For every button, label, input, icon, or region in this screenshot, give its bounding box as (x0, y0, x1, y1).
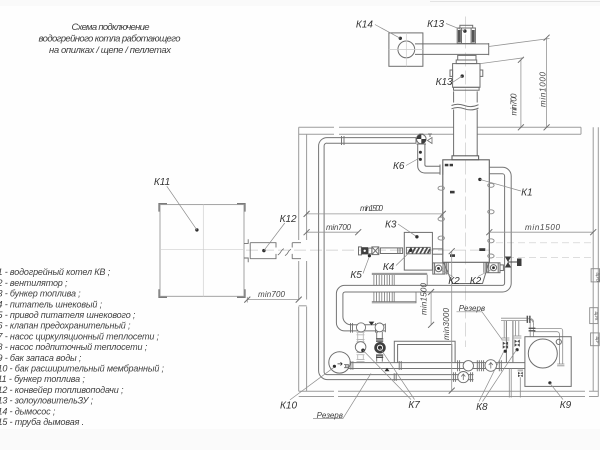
svg-text:12 - конвейер топливоподачи: 12 - конвейер топливоподачи ; (0, 385, 124, 395)
svg-text:min1500: min1500 (420, 282, 429, 315)
svg-text:2 - вентилятор ;: 2 - вентилятор ; (0, 278, 68, 288)
svg-text:min1000: min1000 (539, 71, 548, 107)
svg-text:7 - насос циркуляционный теп: 7 - насос циркуляционный теплосети ; (0, 331, 160, 341)
svg-text:К10: К10 (280, 400, 297, 411)
svg-text:min3000: min3000 (442, 307, 451, 340)
svg-text:11 - бункер топлива ;: 11 - бункер топлива ; (0, 374, 85, 384)
svg-text:13 - золоуловительЗУ ;: 13 - золоуловительЗУ ; (0, 396, 94, 406)
svg-text:15 - труба дымовая .: 15 - труба дымовая . (0, 417, 84, 427)
svg-text:1 - водогрейный котел КВ ;: 1 - водогрейный котел КВ ; (0, 267, 111, 277)
svg-text:6 - клапан предохранительный: 6 - клапан предохранительный ; (0, 321, 131, 331)
svg-text:min700: min700 (258, 290, 286, 299)
svg-text:min1500: min1500 (525, 223, 561, 232)
svg-text:min1500: min1500 (360, 204, 384, 213)
svg-text:4 - питатель шнековый ;: 4 - питатель шнековый ; (0, 299, 103, 309)
svg-text:3 - бункер топлива ;: 3 - бункер топлива ; (0, 289, 81, 299)
svg-text:К1: К1 (521, 188, 532, 199)
svg-text:К14: К14 (356, 20, 373, 31)
svg-text:К12: К12 (280, 214, 297, 225)
svg-text:К8: К8 (476, 402, 488, 413)
svg-text:К6: К6 (393, 161, 405, 172)
svg-text:5 - привод питателя шнековог: 5 - привод питателя шнекового ; (0, 310, 136, 320)
svg-text:К7: К7 (408, 400, 420, 411)
svg-text:на опилках / щепе / пеллетах: на опилках / щепе / пеллетах (49, 45, 172, 56)
svg-text:К2: К2 (470, 276, 482, 287)
svg-text:min700: min700 (510, 93, 519, 116)
svg-text:min700: min700 (326, 223, 352, 232)
svg-text:9 - бак запаса воды ;: 9 - бак запаса воды ; (0, 353, 82, 363)
svg-text:8 - насос подпиточный теплос: 8 - насос подпиточный теплосети ; (0, 342, 148, 352)
svg-text:К2: К2 (448, 276, 460, 287)
svg-text:К11: К11 (154, 177, 170, 188)
svg-text:Схема подключение: Схема подключение (72, 22, 150, 33)
svg-text:10 - бак расширительный мемб: 10 - бак расширительный мембранный ; (0, 364, 165, 374)
svg-text:К5: К5 (350, 270, 362, 281)
svg-text:К3: К3 (385, 220, 397, 231)
svg-text:14 - дымосос ;: 14 - дымосос ; (0, 406, 56, 416)
svg-text:ЩУК: ЩУК (594, 312, 599, 322)
svg-text:К13: К13 (436, 77, 453, 88)
svg-text:водогрейного котла работающего: водогрейного котла работающего (39, 33, 181, 44)
svg-text:К9: К9 (560, 400, 572, 411)
svg-text:К13: К13 (427, 19, 444, 30)
svg-text:Резерв: Резерв (317, 411, 343, 420)
svg-text:К4: К4 (383, 262, 395, 273)
svg-text:ЩУВ: ЩУВ (596, 273, 600, 283)
svg-text:Резерв: Резерв (459, 304, 485, 313)
